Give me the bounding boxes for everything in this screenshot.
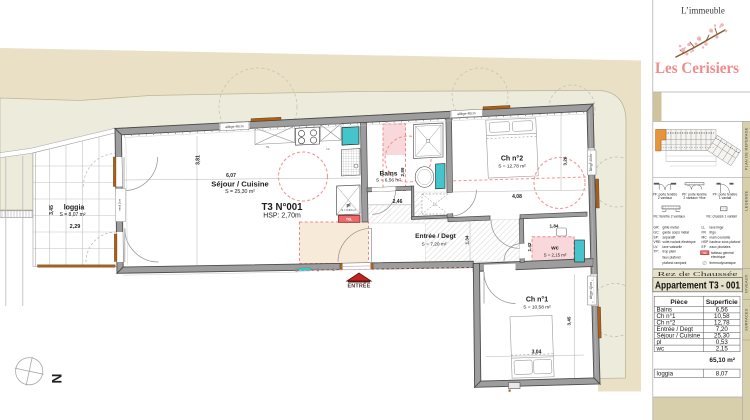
svg-text:pl: pl bbox=[346, 203, 350, 208]
svg-text:Ch n°2: Ch n°2 bbox=[501, 155, 523, 163]
svg-text:3,45: 3,45 bbox=[567, 316, 572, 325]
svg-text:S = 6,56 m²: S = 6,56 m² bbox=[376, 178, 401, 184]
svg-text:lave vaisselle: lave vaisselle bbox=[663, 245, 683, 249]
svg-text:PL: PL bbox=[266, 145, 270, 149]
svg-text:Les Cerisiers: Les Cerisiers bbox=[655, 60, 739, 77]
svg-text:LL: LL bbox=[702, 226, 706, 230]
svg-text:S = 12,78 m²: S = 12,78 m² bbox=[498, 164, 526, 170]
svg-text:trop plein: trop plein bbox=[663, 250, 677, 254]
svg-text:2 vantaux: 2 vantaux bbox=[658, 196, 673, 200]
svg-text:faux plafond: faux plafond bbox=[663, 256, 681, 260]
svg-text:GR:: GR: bbox=[654, 226, 660, 230]
svg-text:hauteur sous plafond: hauteur sous plafond bbox=[710, 240, 741, 244]
svg-text:PLAN DE REPERAGE: PLAN DE REPERAGE bbox=[744, 127, 748, 170]
svg-text:loggia: loggia bbox=[657, 370, 674, 377]
svg-text:S = 25,30 m²: S = 25,30 m² bbox=[225, 189, 255, 195]
svg-text:Bains: Bains bbox=[380, 171, 398, 178]
svg-text:HSP: 2,70m: HSP: 2,70m bbox=[263, 210, 301, 219]
svg-text:NIVEAUX: NIVEAUX bbox=[744, 274, 748, 293]
svg-text:lave linge: lave linge bbox=[710, 226, 724, 230]
svg-text:GC:: GC: bbox=[654, 231, 660, 235]
svg-text:thermodynamique: thermodynamique bbox=[710, 261, 737, 265]
svg-text:2 vantaux +fixe: 2 vantaux +fixe bbox=[683, 196, 705, 200]
svg-text:Rez de Chaussée: Rez de Chaussée bbox=[658, 271, 738, 278]
svg-text:plafond rampant: plafond rampant bbox=[663, 261, 687, 265]
svg-text:VRE:: VRE: bbox=[654, 240, 662, 244]
svg-text:LV: LV bbox=[327, 147, 330, 151]
svg-text:TP:: TP: bbox=[654, 250, 659, 254]
svg-text:1,34: 1,34 bbox=[465, 235, 470, 244]
svg-text:2,89: 2,89 bbox=[400, 167, 405, 176]
svg-text:Séjour / Cuisine: Séjour / Cuisine bbox=[657, 333, 701, 340]
svg-text:2,15: 2,15 bbox=[716, 345, 729, 352]
svg-text:Séjour / Cuisine: Séjour / Cuisine bbox=[211, 180, 268, 189]
svg-text:S = 8,07 m²: S = 8,07 m² bbox=[60, 212, 86, 218]
svg-text:Appartement T3 - 001: Appartement T3 - 001 bbox=[655, 281, 740, 292]
svg-text:séparatif: séparatif bbox=[663, 235, 676, 239]
svg-text:Superficie: Superficie bbox=[706, 299, 738, 306]
svg-text:S = 10,58 m²: S = 10,58 m² bbox=[523, 305, 551, 311]
svg-text:Entrée / Degt: Entrée / Degt bbox=[415, 233, 456, 240]
svg-text:FE: fenêtre 2 vantaux: FE: fenêtre 2 vantaux bbox=[654, 215, 686, 219]
svg-text:4,08: 4,08 bbox=[512, 194, 522, 200]
svg-text:électrique: électrique bbox=[711, 255, 725, 259]
svg-text:3,26: 3,26 bbox=[563, 156, 568, 165]
svg-text:ENTRÉE: ENTRÉE bbox=[347, 282, 370, 290]
svg-text:LEGENDE: LEGENDE bbox=[744, 190, 748, 210]
svg-text:HSP: HSP bbox=[702, 240, 710, 244]
svg-text:main courante: main courante bbox=[710, 235, 731, 239]
svg-text:TGL: TGL bbox=[346, 217, 352, 221]
svg-text:eaux pluviales: eaux pluviales bbox=[710, 245, 731, 249]
svg-text:3,04: 3,04 bbox=[532, 350, 542, 356]
svg-text:MC: MC bbox=[702, 235, 708, 239]
svg-text:FR: FR bbox=[702, 231, 707, 235]
svg-text:garde corps métal: garde corps métal bbox=[663, 231, 690, 235]
svg-text:SURFACES: SURFACES bbox=[744, 308, 748, 331]
svg-text:Ch n°1: Ch n°1 bbox=[526, 296, 548, 304]
svg-text:1 vantail: 1 vantail bbox=[719, 196, 732, 200]
svg-text:grille métal: grille métal bbox=[663, 226, 679, 230]
svg-text:LV:: LV: bbox=[654, 245, 659, 249]
svg-text:1,84: 1,84 bbox=[550, 224, 559, 229]
svg-text:loggia: loggia bbox=[64, 205, 85, 212]
svg-text:S = 7,20 m²: S = 7,20 m² bbox=[422, 242, 447, 248]
svg-text:2,29: 2,29 bbox=[70, 224, 81, 230]
svg-text:wc: wc bbox=[550, 246, 558, 252]
svg-text:6,07: 6,07 bbox=[226, 173, 236, 179]
svg-text:65,10 m²: 65,10 m² bbox=[709, 357, 735, 364]
svg-text:volet roulant électrique: volet roulant électrique bbox=[663, 240, 696, 244]
svg-text:wc: wc bbox=[656, 345, 665, 352]
svg-text:FE: chassis 1 vantail: FE: chassis 1 vantail bbox=[707, 215, 738, 219]
svg-text:3,45: 3,45 bbox=[49, 205, 55, 215]
svg-text:allège 40cm: allège 40cm bbox=[589, 282, 593, 300]
svg-text:1,42: 1,42 bbox=[527, 242, 532, 251]
svg-text:3,81: 3,81 bbox=[196, 155, 202, 165]
svg-text:seuil 2cm: seuil 2cm bbox=[118, 198, 122, 210]
svg-text:S = 2,15 m²: S = 2,15 m² bbox=[544, 253, 567, 258]
svg-text:L’immeuble: L’immeuble bbox=[681, 6, 725, 16]
svg-text:8,07: 8,07 bbox=[716, 370, 729, 377]
svg-text:TGL: TGL bbox=[702, 252, 707, 255]
svg-text:frigo: frigo bbox=[710, 231, 717, 235]
svg-text:SP:: SP: bbox=[654, 235, 659, 239]
svg-text:2,46: 2,46 bbox=[393, 199, 403, 205]
svg-text:S = 0,53 m²: S = 0,53 m² bbox=[341, 208, 356, 212]
svg-text:Pièce: Pièce bbox=[670, 299, 688, 306]
svg-text:N: N bbox=[49, 373, 65, 383]
